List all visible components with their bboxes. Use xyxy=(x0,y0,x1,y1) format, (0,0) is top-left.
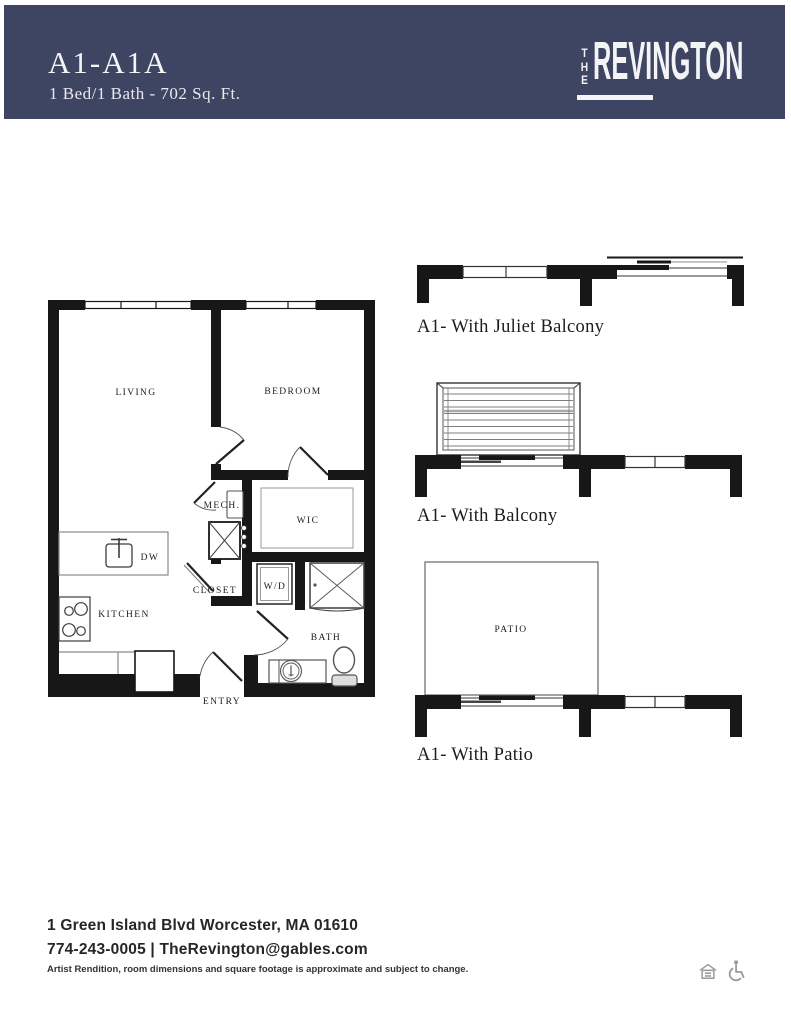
variant-patio-drawing: PATIO xyxy=(413,559,743,745)
room-label-closet: CLOSET xyxy=(193,586,237,596)
floor-plan-drawing: LIVING BEDROOM MECH. WIC DW CLOSET W/D K… xyxy=(48,300,375,710)
caption-juliet-balcony: A1- With Juliet Balcony xyxy=(417,317,604,338)
room-label-entry: ENTRY xyxy=(203,697,241,707)
page-title: A1-A1A xyxy=(48,45,169,81)
floorplan-flyer-page: A1-A1A 1 Bed/1 Bath - 702 Sq. Ft. T H E … xyxy=(0,0,791,1024)
brand-name: REVINGTON xyxy=(593,34,743,88)
brand-logo: T H E REVINGTON xyxy=(577,43,752,103)
room-label-kitchen: KITCHEN xyxy=(98,610,150,620)
balcony-wall-strip xyxy=(415,455,742,497)
variant-balcony-drawing xyxy=(413,367,743,499)
room-label-bath: BATH xyxy=(311,633,341,643)
footer-icons xyxy=(698,957,758,985)
footer-disclaimer: Artist Rendition, room dimensions and sq… xyxy=(47,964,468,975)
brand-underline xyxy=(577,95,653,100)
juliet-wall-strip xyxy=(417,265,744,306)
room-label-wic: WIC xyxy=(297,516,320,526)
patio-wall-strip xyxy=(415,695,742,737)
bedroom-window xyxy=(246,302,316,309)
variant-juliet-balcony-drawing xyxy=(415,254,745,308)
caption-balcony: A1- With Balcony xyxy=(417,506,557,527)
room-label-living: LIVING xyxy=(115,388,156,398)
label-dishwasher: DW xyxy=(141,553,160,563)
wheelchair-icon xyxy=(726,959,747,983)
water-heater-icon xyxy=(209,522,246,559)
label-washer-dryer: W/D xyxy=(264,582,287,592)
shower-icon xyxy=(310,563,364,611)
living-window xyxy=(85,302,191,309)
equal-housing-icon xyxy=(698,963,718,981)
juliet-railing xyxy=(607,258,743,264)
fridge-icon xyxy=(135,651,174,692)
room-label-bedroom: BEDROOM xyxy=(264,387,321,397)
caption-patio: A1- With Patio xyxy=(417,745,533,766)
footer-contact: 774-243-0005 | TheRevington@gables.com xyxy=(47,941,368,959)
toilet-icon xyxy=(332,647,357,686)
brand-the-stack: T H E xyxy=(578,47,591,88)
stove-icon xyxy=(59,597,90,641)
balcony-deck xyxy=(437,383,580,455)
footer-address: 1 Green Island Blvd Worcester, MA 01610 xyxy=(47,917,358,935)
header-band: A1-A1A 1 Bed/1 Bath - 702 Sq. Ft. T H E … xyxy=(4,5,785,119)
vanity-sink-icon xyxy=(269,660,326,683)
page-subtitle: 1 Bed/1 Bath - 702 Sq. Ft. xyxy=(49,84,241,104)
kitchen-sink-icon xyxy=(106,538,132,567)
patio-label: PATIO xyxy=(494,625,527,635)
room-label-mech: MECH. xyxy=(204,501,241,511)
